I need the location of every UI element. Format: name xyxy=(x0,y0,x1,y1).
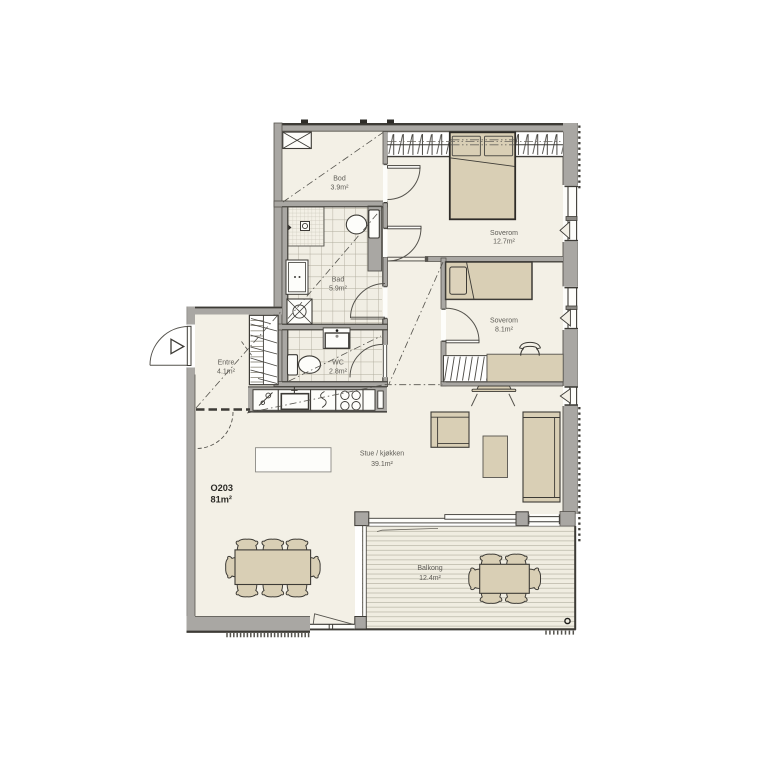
svg-text:Bod: Bod xyxy=(333,176,346,183)
svg-text:Soverom: Soverom xyxy=(490,318,518,325)
svg-text:Balkong: Balkong xyxy=(417,565,442,572)
svg-text:4.1m²: 4.1m² xyxy=(217,369,236,376)
svg-text:2.8m²: 2.8m² xyxy=(329,369,348,376)
svg-text:12.4m²: 12.4m² xyxy=(419,575,441,582)
svg-text:Entre: Entre xyxy=(218,360,235,367)
svg-text:O203: O203 xyxy=(211,483,233,493)
svg-text:Bad: Bad xyxy=(332,277,345,284)
svg-text:3.9m²: 3.9m² xyxy=(331,185,350,192)
svg-text:12.7m²: 12.7m² xyxy=(493,239,515,246)
svg-text:WC: WC xyxy=(332,360,344,367)
svg-text:39.1m²: 39.1m² xyxy=(371,461,393,468)
svg-text:Stue / kjøkken: Stue / kjøkken xyxy=(360,451,404,458)
svg-text:5.9m²: 5.9m² xyxy=(329,286,348,293)
svg-text:Soverom: Soverom xyxy=(490,230,518,237)
svg-text:81m²: 81m² xyxy=(211,494,232,504)
svg-text:8.1m²: 8.1m² xyxy=(495,327,514,334)
